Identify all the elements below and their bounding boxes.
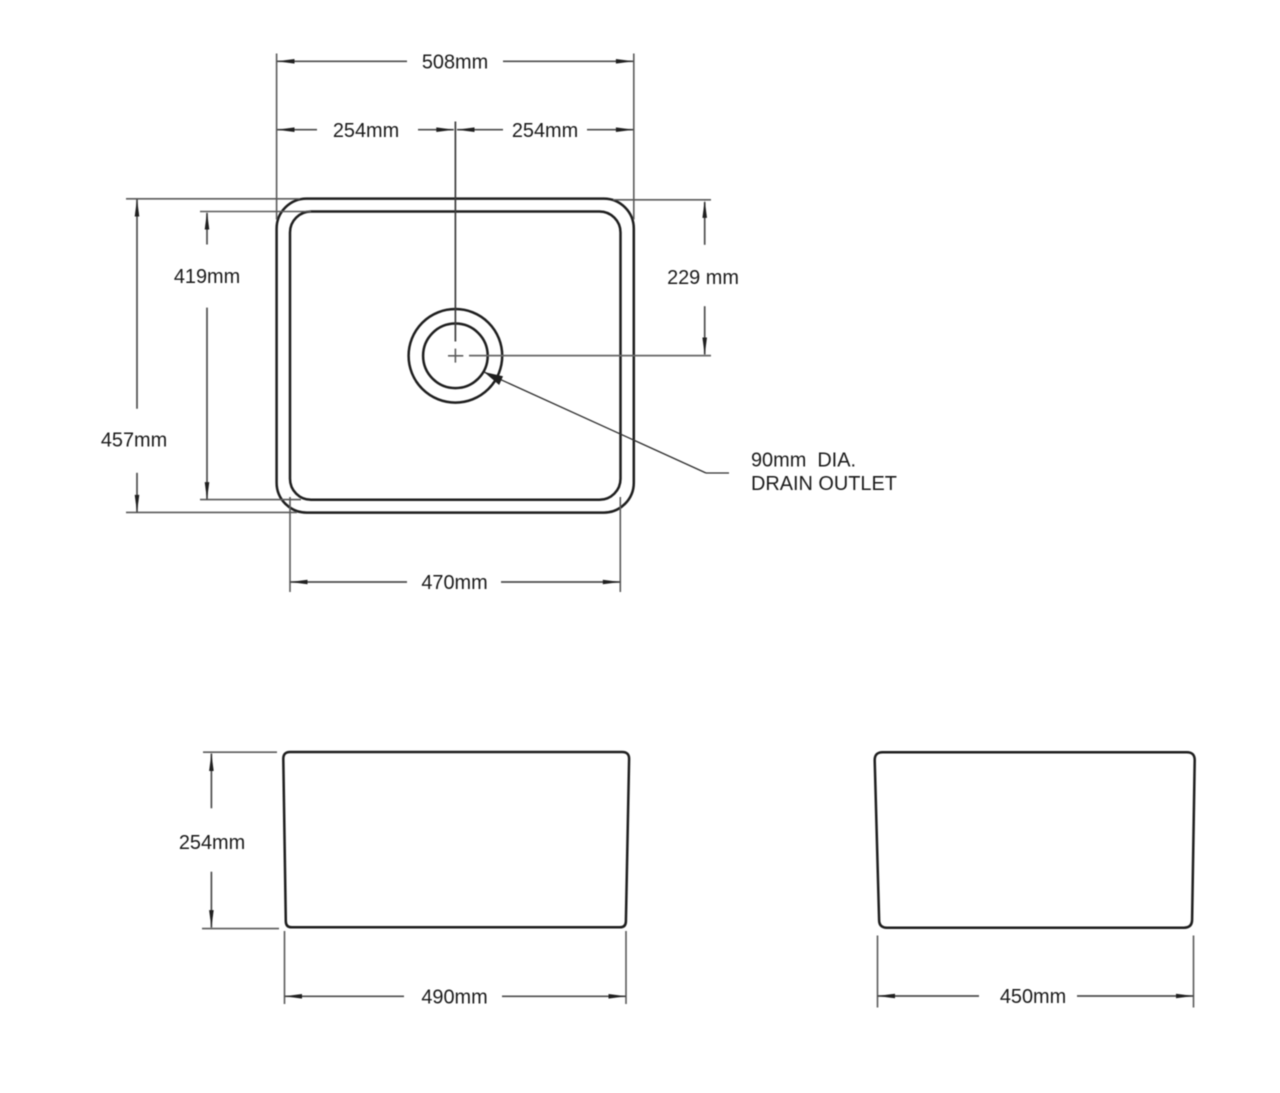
svg-text:419mm: 419mm bbox=[174, 266, 240, 288]
svg-text:450mm: 450mm bbox=[1000, 986, 1066, 1008]
svg-text:457mm: 457mm bbox=[101, 429, 167, 451]
svg-text:470mm: 470mm bbox=[421, 572, 487, 594]
svg-text:508mm: 508mm bbox=[422, 51, 488, 73]
svg-text:254mm: 254mm bbox=[333, 120, 399, 142]
svg-text:90mm DIA.: 90mm DIA. bbox=[751, 450, 856, 472]
svg-text:254mm: 254mm bbox=[512, 120, 578, 142]
svg-text:229 mm: 229 mm bbox=[667, 267, 739, 289]
svg-text:490mm: 490mm bbox=[421, 987, 487, 1009]
svg-text:DRAIN OUTLET: DRAIN OUTLET bbox=[751, 473, 897, 495]
svg-text:254mm: 254mm bbox=[179, 832, 245, 854]
